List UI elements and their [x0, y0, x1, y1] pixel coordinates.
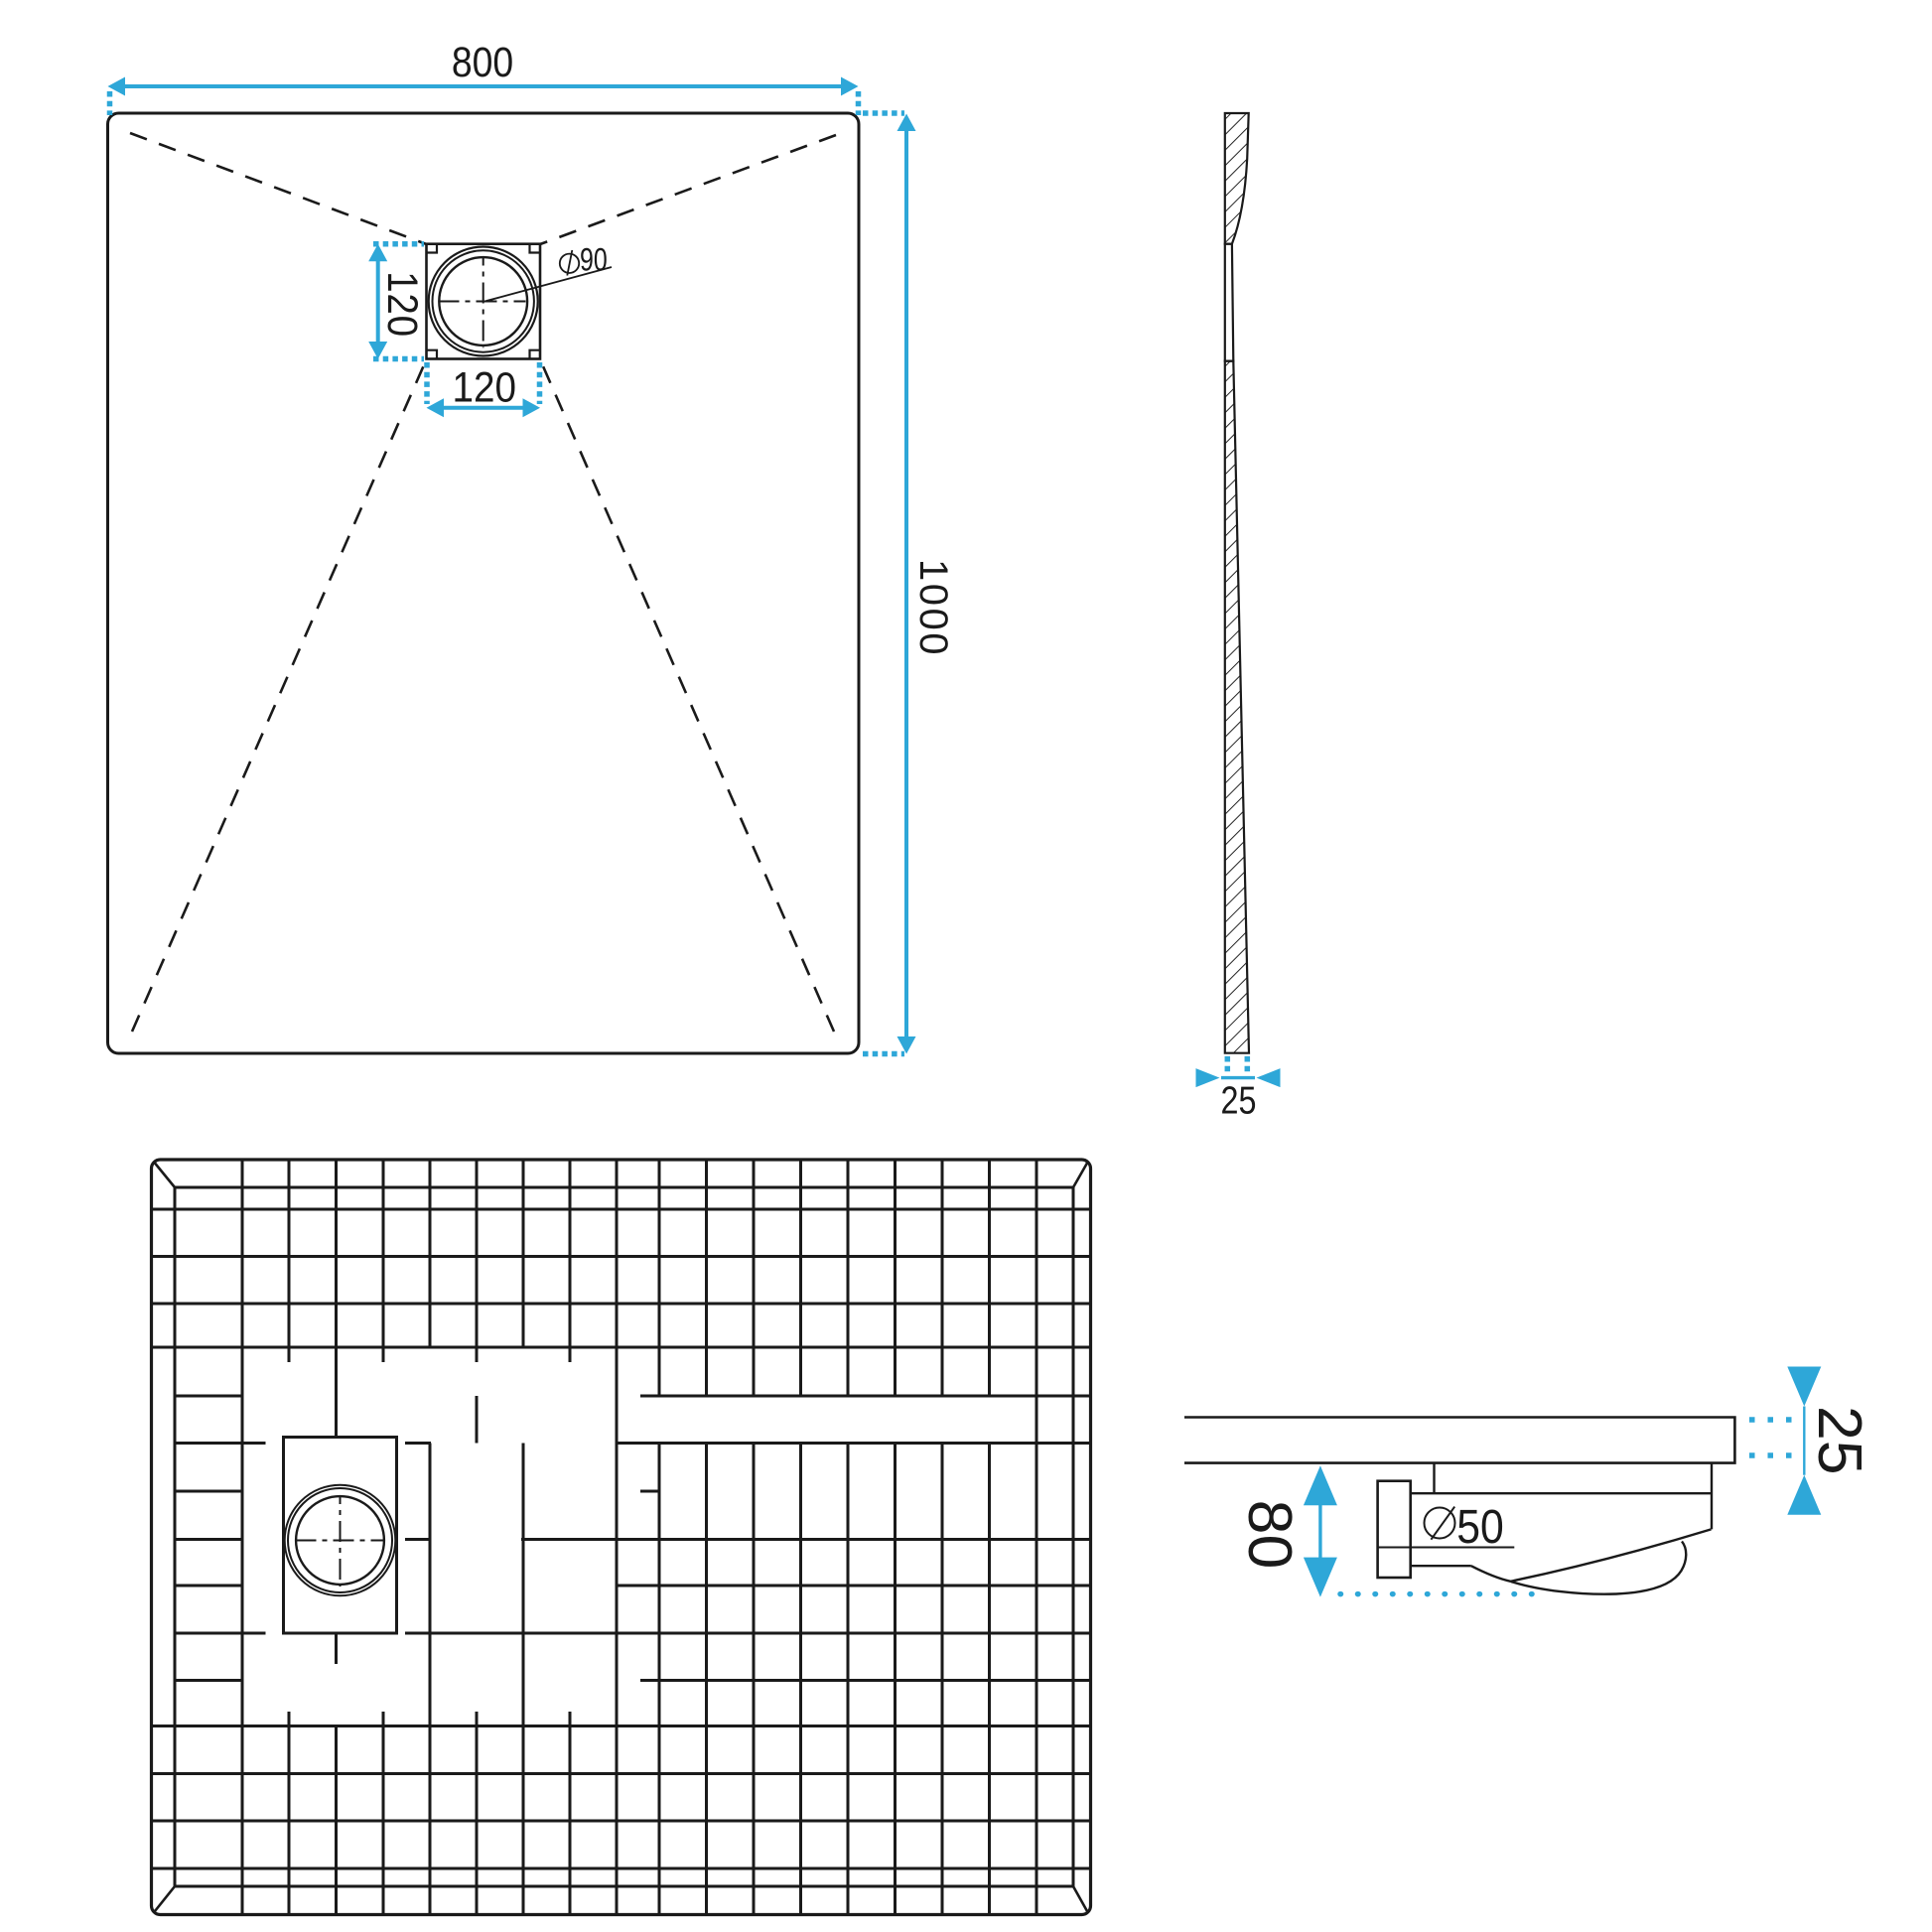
svg-text:25: 25: [1805, 1406, 1873, 1475]
svg-text:90: 90: [580, 243, 608, 279]
svg-text:1000: 1000: [911, 559, 955, 657]
svg-text:120: 120: [379, 271, 427, 338]
svg-text:800: 800: [452, 40, 513, 86]
svg-text:120: 120: [452, 363, 516, 411]
svg-text:50: 50: [1456, 1500, 1504, 1554]
svg-text:25: 25: [1221, 1079, 1257, 1122]
svg-text:80: 80: [1235, 1500, 1304, 1570]
